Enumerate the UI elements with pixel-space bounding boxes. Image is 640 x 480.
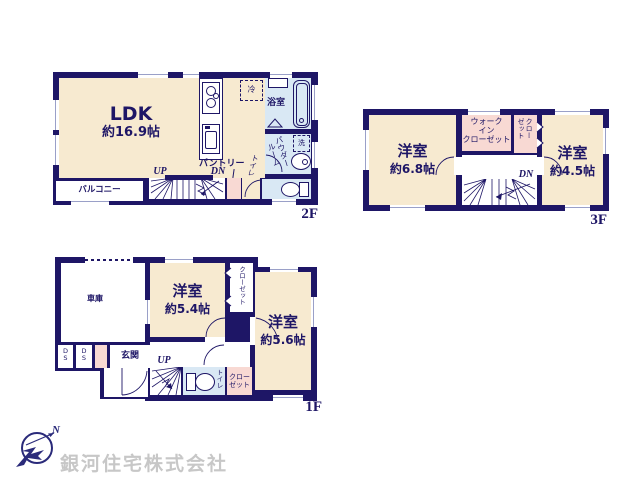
window-marker (468, 109, 500, 115)
washer-icon: 洗 (293, 135, 310, 152)
dn-label-3f: DN (513, 169, 539, 181)
entrance-closet (95, 345, 107, 368)
bath-label: 浴室 (267, 98, 285, 108)
window-marker (145, 300, 150, 324)
ds-duct-1: DS (58, 345, 73, 368)
window-marker (53, 135, 59, 165)
bifold-door-icon (224, 295, 232, 307)
north-label: N (52, 424, 60, 436)
up-label-1f: UP (151, 355, 177, 367)
floorplan-page: LDK 約16.9帖 冷 浴室 (0, 0, 640, 480)
dn-label-2f: DN (205, 166, 231, 178)
ds-duct-2: DS (76, 345, 92, 368)
window-marker (270, 267, 298, 272)
closet-1f-low: クロー ゼット (227, 367, 252, 395)
stairs-2f-treads (149, 178, 225, 199)
garage-opening-dashed (85, 259, 133, 261)
window-marker (555, 109, 590, 115)
floor-tag-3f: 3F (590, 212, 607, 229)
stove-icon (202, 82, 220, 114)
door-arc-1f-a (205, 317, 226, 338)
window-marker (272, 199, 296, 205)
bath-door-icon (267, 118, 283, 128)
garage-top-wall (133, 257, 150, 263)
bifold-door-icon (224, 267, 232, 279)
room-1f-a-label: 洋室 約5.4帖 (150, 283, 225, 317)
closet-1f-low-label: クロー ゼット (227, 373, 252, 389)
stairs-1f-treads (150, 367, 181, 395)
door-opening (454, 157, 464, 175)
closet-3f-label: クロー ゼット (517, 118, 533, 139)
closet-3f: クロー ゼット (514, 115, 537, 153)
garage-top-wall (55, 257, 85, 263)
room-powder: パウダー ルーム 洗 (265, 134, 311, 174)
powder-door-arc (265, 154, 283, 173)
window-marker (270, 72, 292, 78)
door-arc-hall (203, 344, 225, 366)
stairs-1f (150, 367, 181, 395)
bifold-door-icon (536, 137, 544, 149)
window-marker (311, 297, 317, 327)
entrance: 玄関 (110, 345, 150, 368)
toilet-tank-icon (299, 182, 309, 197)
kitchen-sink-icon (202, 124, 220, 154)
fridge-icon: 冷 (240, 80, 263, 101)
balcony-label: バルコニー (56, 186, 143, 196)
fridge-label: 冷 (241, 85, 262, 94)
pantry (227, 178, 241, 199)
porch (100, 368, 150, 399)
door-arc-3f-b (543, 156, 563, 176)
company-name: 銀河住宅株式会社 (60, 449, 228, 476)
closet-1f-tall: クローゼット (230, 263, 253, 312)
window-marker (138, 72, 168, 78)
entrance-label: 玄関 (110, 351, 150, 361)
stairs-3f (462, 179, 537, 205)
walk-in-closet: ウォーク イン クローゼット (462, 115, 511, 151)
toilet-label-1f: トイレ (215, 369, 222, 389)
toilet-door-arc-2f (244, 179, 262, 198)
kitchen-counter (199, 78, 223, 160)
bath-counter-icon (268, 78, 288, 88)
bathtub-icon (293, 80, 310, 128)
closet-1f-tall-label: クローゼット (237, 266, 244, 305)
toilet-bowl-icon (281, 182, 300, 197)
window-marker (183, 72, 199, 78)
ds-label: DS (58, 348, 73, 363)
floor-tag-1f: 1F (305, 399, 322, 416)
door-arc-1f-b (255, 317, 279, 345)
window-marker (565, 205, 590, 211)
window-marker (390, 205, 425, 211)
stairs-3f-treads (462, 179, 537, 205)
floor-3f-plan: 洋室 約6.8帖 ウォーク イン クローゼット クロー ゼット 洋室 約4.5帖 (363, 109, 609, 211)
floor-tag-2f: 2F (301, 206, 318, 223)
ds-label: DS (76, 348, 92, 363)
window-marker (273, 395, 303, 401)
room-toilet-1f: トイレ (183, 367, 225, 395)
window-marker (312, 142, 318, 168)
room-bath: 浴室 (265, 78, 311, 129)
window-marker (312, 85, 318, 120)
washer-label: 洗 (294, 139, 309, 147)
balcony: バルコニー (56, 181, 143, 201)
window-marker (603, 128, 609, 154)
room-ldk-label: LDK 約16.9帖 (81, 104, 181, 141)
window-marker (53, 100, 59, 130)
toilet-bowl-icon (195, 373, 215, 391)
window-marker (165, 257, 193, 263)
stairs-2f (149, 178, 225, 199)
washbasin-icon (291, 153, 311, 170)
floor-2f-plan: LDK 約16.9帖 冷 浴室 (53, 72, 318, 205)
walk-in-closet-label: ウォーク イン クローゼット (462, 117, 511, 145)
floor-1f-plan: 車庫 洋室 約5.4帖 クローゼット 洋室 約5.6帖 (55, 257, 320, 407)
window-marker (71, 199, 109, 205)
room-toilet-2f (262, 179, 311, 199)
front-door-arc (104, 368, 148, 397)
door-arc-3f-a (435, 156, 455, 176)
window-marker (363, 130, 369, 170)
up-label-2f: UP (149, 166, 171, 178)
bifold-door-icon (536, 121, 544, 133)
garage-label: 車庫 (87, 294, 103, 303)
